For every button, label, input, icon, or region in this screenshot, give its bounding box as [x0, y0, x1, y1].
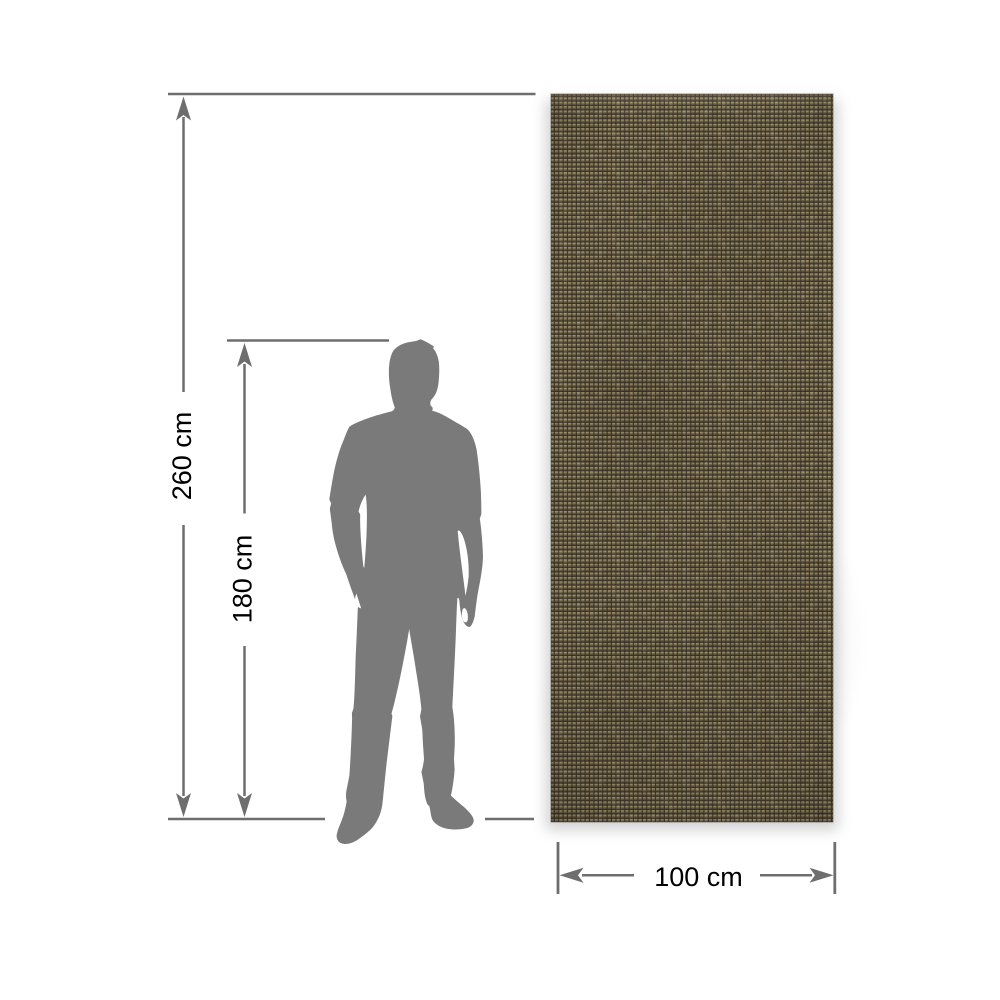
svg-text:260 cm: 260 cm — [167, 412, 197, 501]
svg-text:180 cm: 180 cm — [228, 535, 258, 624]
svg-text:100 cm: 100 cm — [654, 862, 743, 892]
